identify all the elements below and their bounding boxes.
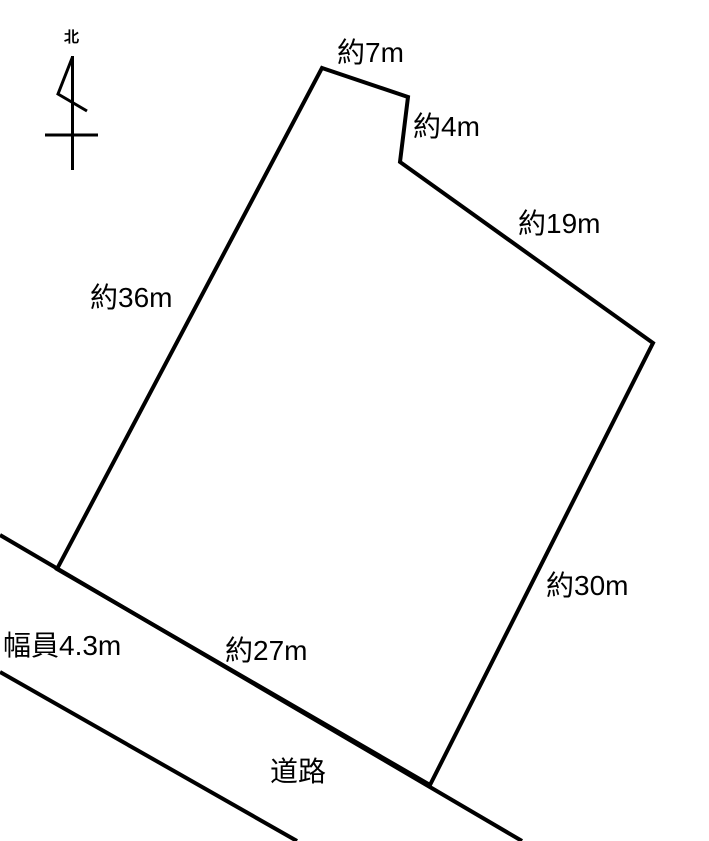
road-width-label: 幅員4.3m <box>3 631 121 660</box>
road-name-label: 道路 <box>270 757 326 786</box>
diagram-drawing <box>0 0 709 841</box>
road-upper-edge-line <box>0 535 522 841</box>
north-label: 北 <box>64 30 79 45</box>
north-arrow-icon <box>45 56 98 170</box>
dimension-label-west-edge: 約36m <box>90 283 172 312</box>
dimension-label-notch-edge: 約4m <box>413 112 480 141</box>
land-plot-diagram: 北 約7m 約4m 約19m 約36m 約30m 約27m 幅員4.3m 道路 <box>0 0 709 841</box>
dimension-label-northeast-edge: 約19m <box>518 209 600 238</box>
dimension-label-southeast-edge: 約30m <box>546 571 628 600</box>
dimension-label-top-edge: 約7m <box>337 38 404 67</box>
road-lower-edge-line <box>0 672 297 841</box>
parcel-outline <box>57 68 653 785</box>
dimension-label-south-edge: 約27m <box>225 636 307 665</box>
